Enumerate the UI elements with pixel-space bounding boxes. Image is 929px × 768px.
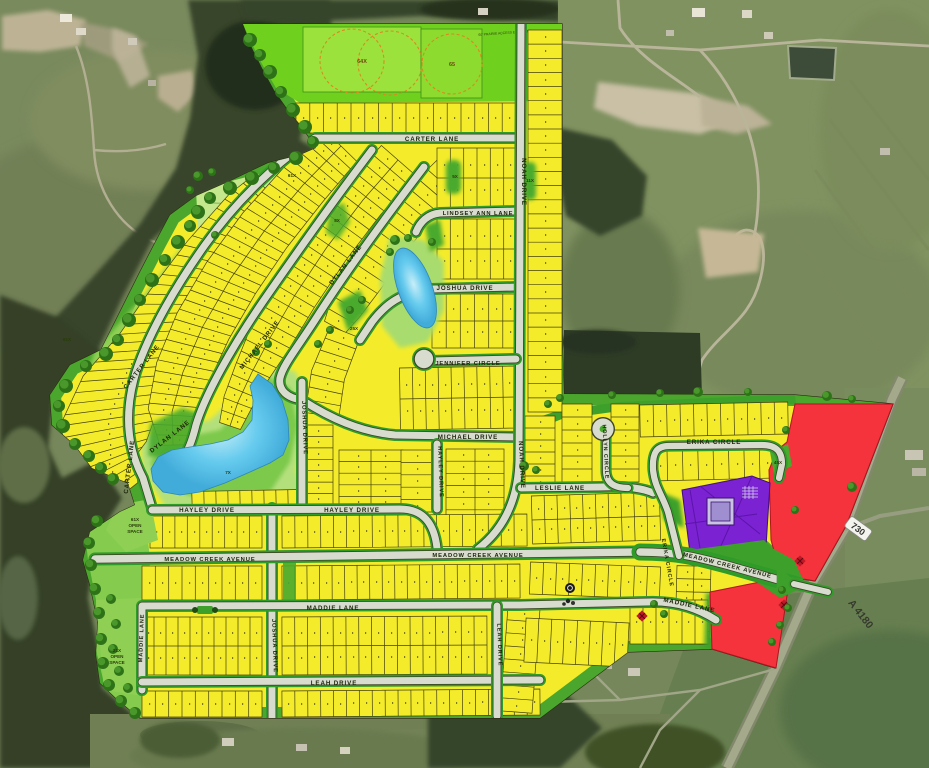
svg-text:21X: 21X [113,648,122,653]
svg-text:LEAH DRIVE: LEAH DRIVE [311,680,357,687]
svg-text:8X: 8X [334,218,341,223]
svg-text:65: 65 [449,62,455,68]
svg-text:MADDIE LANE: MADDIE LANE [307,605,360,612]
svg-text:25X: 25X [350,326,359,331]
svg-text:SPACE: SPACE [127,529,143,534]
svg-text:MICHAEL DRIVE: MICHAEL DRIVE [438,434,498,441]
svg-text:OPEN: OPEN [110,654,124,659]
svg-text:11X: 11X [526,178,535,183]
svg-text:JENNIFER CIRCLE: JENNIFER CIRCLE [435,361,500,367]
svg-text:OPEN: OPEN [128,523,142,528]
svg-text:CARTER LANE: CARTER LANE [405,136,459,143]
svg-text:HAYLEY DRIVE: HAYLEY DRIVE [179,507,235,514]
svg-text:61X: 61X [288,173,297,178]
svg-text:JOSHUA DRIVE: JOSHUA DRIVE [437,285,494,292]
svg-text:HAYLEY DRIVE: HAYLEY DRIVE [324,507,380,514]
svg-text:61X: 61X [63,337,72,342]
svg-text:SPACE: SPACE [109,660,125,665]
svg-text:61X: 61X [131,517,140,522]
svg-text:64X: 64X [357,59,367,65]
svg-text:7X: 7X [225,470,232,475]
svg-text:LINDSEY ANN LANE: LINDSEY ANN LANE [443,211,514,217]
svg-text:ERIKA CIRCLE: ERIKA CIRCLE [687,439,742,446]
svg-text:MEADOW CREEK AVENUE: MEADOW CREEK AVENUE [432,553,523,559]
svg-text:LESLIE LANE: LESLIE LANE [535,485,585,492]
svg-text:5X: 5X [452,174,459,179]
svg-text:MEADOW CREEK AVENUE: MEADOW CREEK AVENUE [164,557,255,563]
svg-text:45X: 45X [774,460,783,465]
